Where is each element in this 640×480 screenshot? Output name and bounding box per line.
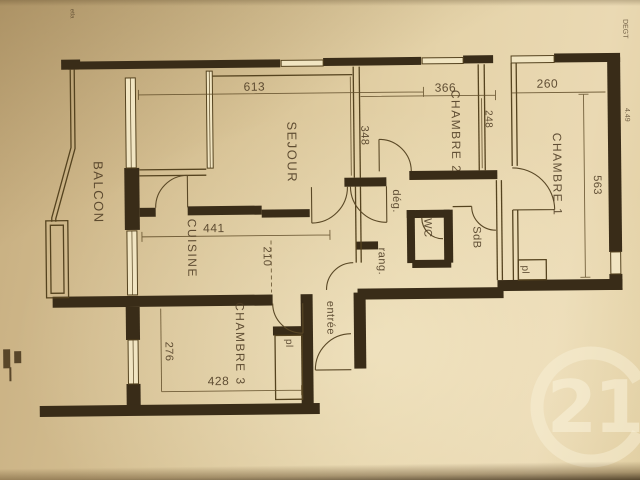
dim-label-chambre2-width: 366 — [435, 82, 457, 94]
room-label-entree: entrée — [324, 301, 335, 335]
floorplan-walls-svg — [0, 0, 640, 480]
room-label-sejour: SEJOUR — [285, 121, 299, 183]
room-label-degagement: dég. — [390, 189, 401, 213]
margin-note-top-left: etla — [69, 9, 75, 19]
margin-note-right-upper: DEGT — [621, 19, 628, 39]
closet-label-chambre1: pl — [519, 265, 529, 274]
room-label-balcon: BALCON — [92, 161, 106, 224]
paper-marks — [3, 349, 21, 381]
windows — [125, 55, 622, 384]
dim-label-sejour-depth: 348 — [358, 126, 369, 146]
dim-label-sejour-width: 613 — [244, 81, 266, 93]
room-label-wc: WC — [421, 218, 432, 237]
room-label-chambre2: CHAMBRE 2 — [449, 90, 462, 174]
dim-label-chambre3-depth: 276 — [163, 342, 174, 362]
dim-label-cuisine-width: 441 — [203, 222, 225, 234]
room-label-chambre3: CHAMBRE 3 — [234, 302, 247, 386]
room-label-sdb: SdB — [470, 226, 481, 248]
floorplan-photo: BALCON SEJOUR CUISINE CHAMBRE 1 CHAMBRE … — [0, 0, 640, 480]
room-label-cuisine: CUISINE — [186, 219, 199, 278]
margin-note-right-lower: 4.49 — [623, 108, 630, 122]
closet-label-chambre3: pl — [283, 339, 293, 348]
dim-label-chambre3-width: 428 — [208, 375, 230, 387]
floorplan-drawing: BALCON SEJOUR CUISINE CHAMBRE 1 CHAMBRE … — [0, 0, 640, 480]
dim-label-chambre1-depth: 563 — [591, 175, 602, 195]
room-label-rangement: rang. — [376, 248, 387, 276]
dim-label-cuisine-depth: 210 — [261, 247, 272, 267]
dim-label-duct-depth: 248 — [483, 110, 493, 128]
room-label-chambre1: CHAMBRE 1 — [551, 133, 564, 217]
dim-label-chambre1-width: 260 — [537, 77, 559, 89]
